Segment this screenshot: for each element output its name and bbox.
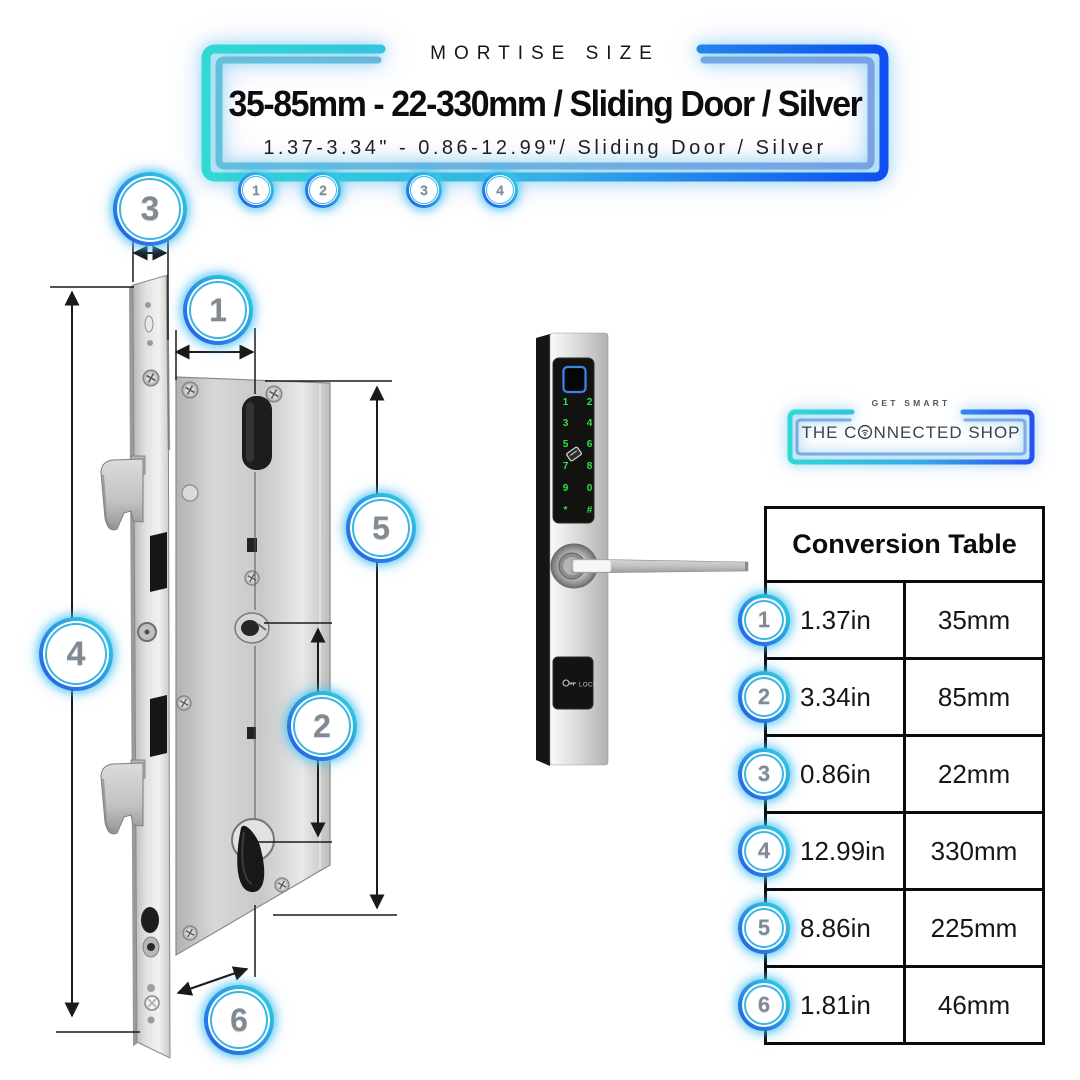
keypad-panel: 1 2 3 4 5 6 7 8 9 0 * # bbox=[553, 358, 594, 523]
callout-2: 2 bbox=[287, 691, 357, 761]
row-badge: 2 bbox=[738, 671, 790, 723]
svg-text:2: 2 bbox=[587, 397, 593, 408]
table-row: 4 12.99in 330mm bbox=[767, 814, 1042, 891]
fingerprint-sensor-icon bbox=[564, 367, 586, 392]
brand-name: THE CNNECTED SHOP bbox=[783, 423, 1039, 443]
header-badge-4: 4 bbox=[482, 172, 518, 208]
lock-panel: LOCK bbox=[553, 657, 597, 709]
row-badge: 4 bbox=[738, 825, 790, 877]
page-title: 35-85mm - 22-330mm / Sliding Door / Silv… bbox=[216, 83, 874, 125]
mm-value: 330mm bbox=[906, 814, 1042, 888]
table-title: Conversion Table bbox=[767, 509, 1042, 583]
mm-value: 22mm bbox=[906, 737, 1042, 811]
door-handle bbox=[551, 544, 748, 588]
mm-value: 85mm bbox=[906, 660, 1042, 734]
svg-text:9: 9 bbox=[563, 483, 569, 494]
svg-text:6: 6 bbox=[587, 439, 593, 450]
svg-text:5: 5 bbox=[563, 439, 569, 450]
brand-logo: GET SMART THE CNNECTED SHOP bbox=[783, 393, 1039, 477]
svg-text:1: 1 bbox=[563, 397, 569, 408]
svg-text:7: 7 bbox=[563, 461, 569, 472]
lock-side-edge bbox=[536, 334, 550, 766]
lower-bolt-slot bbox=[150, 695, 167, 757]
page-subtitle: 1.37-3.34" - 0.86-12.99"/ Sliding Door /… bbox=[195, 137, 895, 160]
table-row: 2 3.34in 85mm bbox=[767, 660, 1042, 737]
svg-text:#: # bbox=[587, 505, 593, 516]
callout-5: 5 bbox=[346, 493, 416, 563]
callout-4: 4 bbox=[39, 617, 113, 691]
upper-hook-bolt bbox=[101, 456, 145, 530]
smart-lock-photo: 1 2 3 4 5 6 7 8 9 0 * # bbox=[520, 320, 760, 780]
bottom-slot bbox=[141, 907, 159, 933]
svg-text:3: 3 bbox=[563, 418, 569, 429]
table-row: 1 1.37in 35mm bbox=[767, 583, 1042, 660]
row-badge: 6 bbox=[738, 979, 790, 1031]
lower-hook-bolt bbox=[101, 760, 145, 834]
brand-tagline: GET SMART bbox=[783, 398, 1039, 408]
faceplate bbox=[129, 275, 170, 1058]
upper-bolt-slot bbox=[150, 532, 167, 592]
lock-body bbox=[176, 377, 330, 955]
svg-text:0: 0 bbox=[587, 483, 593, 494]
conversion-table: Conversion Table 1 1.37in 35mm 2 3.34in … bbox=[764, 506, 1045, 1045]
spindle-hole bbox=[235, 613, 269, 643]
row-badge: 1 bbox=[738, 594, 790, 646]
table-row: 6 1.81in 46mm bbox=[767, 968, 1042, 1042]
callout-6: 6 bbox=[204, 985, 274, 1055]
svg-text:8: 8 bbox=[587, 461, 593, 472]
wifi-o-icon bbox=[857, 424, 873, 440]
table-row: 3 0.86in 22mm bbox=[767, 737, 1042, 814]
svg-text:*: * bbox=[564, 505, 568, 516]
row-badge: 5 bbox=[738, 902, 790, 954]
mortise-size-infographic: MORTISE SIZE 35-85mm - 22-330mm / Slidin… bbox=[0, 0, 1080, 1080]
mm-value: 225mm bbox=[906, 891, 1042, 965]
mm-value: 46mm bbox=[906, 968, 1042, 1042]
table-row: 5 8.86in 225mm bbox=[767, 891, 1042, 968]
mortise-size-label: MORTISE SIZE bbox=[195, 43, 895, 65]
svg-text:LOCK: LOCK bbox=[579, 683, 597, 689]
callout-1: 1 bbox=[183, 275, 253, 345]
row-badge: 3 bbox=[738, 748, 790, 800]
mm-value: 35mm bbox=[906, 583, 1042, 657]
callout-3: 3 bbox=[113, 172, 187, 246]
svg-text:4: 4 bbox=[587, 418, 593, 429]
